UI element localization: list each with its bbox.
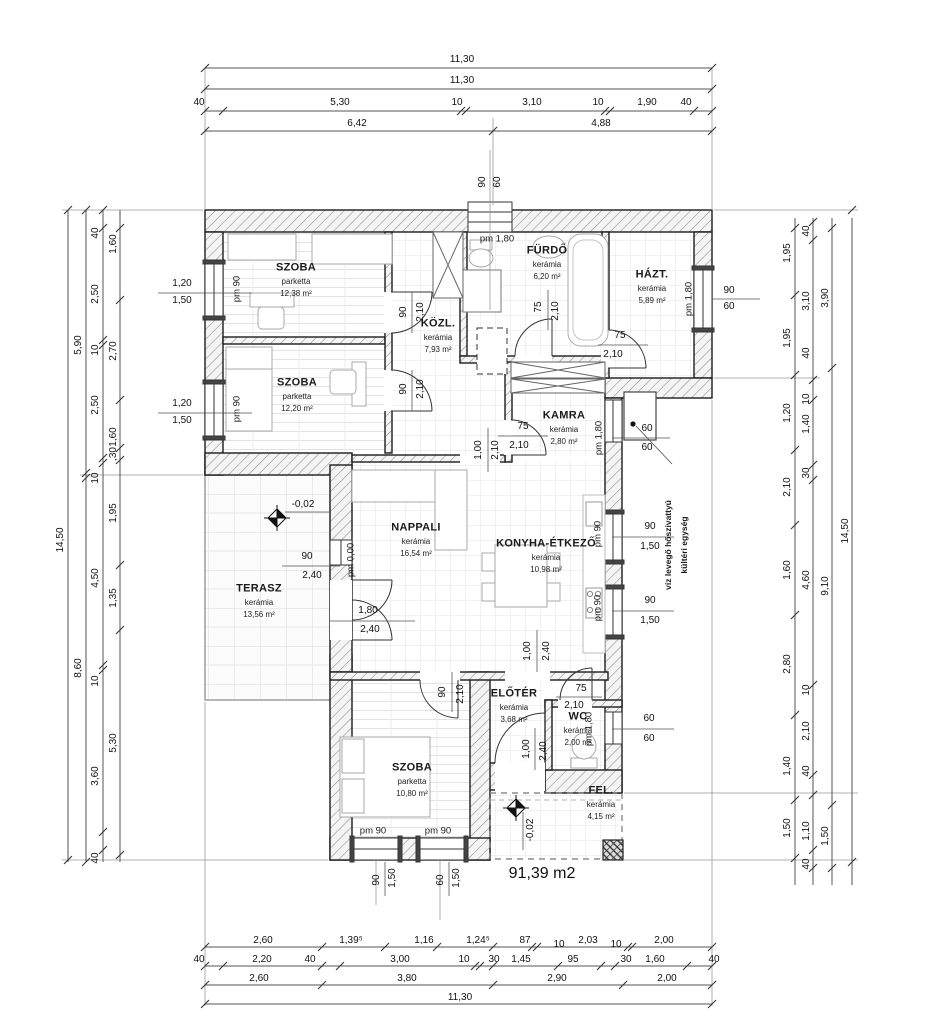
dimension-right: 1,20 (783, 403, 793, 422)
door-szoba1-label: 90 (399, 306, 409, 317)
window-left-1-label: 1,50 (172, 296, 191, 306)
dimension-bottom: 10 (610, 940, 621, 950)
door-wc-label: 2,10 (564, 701, 583, 711)
window-konyha-2-label: pm 90 (593, 595, 603, 621)
dimension-bottom: 2,60 (249, 974, 268, 984)
dimension-top: 40 (680, 98, 691, 108)
room-area: 16,54 m² (400, 550, 432, 558)
window-bottom-2 (416, 836, 468, 862)
dimension-top: 4,88 (591, 119, 610, 129)
window-left-1 (203, 260, 225, 320)
window-top-label: 60 (493, 176, 503, 187)
dimension-left: 2,70 (109, 341, 119, 360)
dimension-left: 10 (91, 344, 101, 355)
level-terasz-label: -0,02 (292, 500, 315, 510)
window-left-2 (203, 380, 225, 440)
dimension-right: 3,90 (821, 288, 831, 307)
dimension-bottom: 2,90 (547, 974, 566, 984)
room-name: FEL. (588, 786, 613, 797)
room-name: TERASZ (236, 584, 282, 595)
window-wc-label: 60 (643, 714, 654, 724)
dimension-left: 40 (91, 852, 101, 863)
window-bottom-1-label: pm 90 (360, 826, 386, 836)
window-hazt-label: pm 1,80 (684, 282, 694, 316)
room-finish: kerámia (638, 285, 666, 293)
door-szoba2-label: 90 (399, 383, 409, 394)
dimension-bottom: 11,30 (448, 993, 472, 1003)
dimension-right: 40 (802, 858, 812, 869)
door-terasz-label: 2,40 (360, 625, 379, 635)
room-area: 10,98 m² (530, 566, 562, 574)
room-name: ELŐTÉR (491, 689, 537, 700)
door-hazt-label: 75 (614, 331, 625, 341)
heat-pump-note-label: víz levegő hőszivattyú (664, 500, 673, 590)
dimension-right: 10 (802, 393, 812, 404)
door-szoba1-label: 2,10 (416, 302, 426, 321)
dimension-right: 40 (802, 765, 812, 776)
window-wc (605, 712, 622, 744)
room-name: SZOBA (276, 263, 316, 274)
dimension-right: 1,50 (783, 818, 793, 837)
dimension-bottom: 2,00 (657, 974, 676, 984)
window-top-label: 90 (478, 176, 488, 187)
dimension-right: 1,50 (821, 826, 831, 845)
dimension-left: 1,95 (109, 503, 119, 522)
dimension-right: 1,60 (783, 560, 793, 579)
dimension-left: 14,50 (56, 527, 66, 552)
dimension-right: 9,10 (821, 576, 831, 595)
dimension-right: 2,80 (783, 654, 793, 673)
dimension-bottom: 40 (708, 955, 719, 965)
dimension-left: 5,30 (109, 733, 119, 752)
window-hazt-label: 60 (723, 302, 734, 312)
dimension-right: 4,60 (802, 570, 812, 589)
dimension-left: 10 (91, 472, 101, 483)
room-area: 12,20 m² (281, 405, 313, 413)
door-kamra-label: 75 (517, 422, 528, 432)
dimension-right: 30 (802, 467, 812, 478)
opening-konyha-eloter-label: 2,40 (542, 641, 552, 660)
window-left-2-label: 1,20 (172, 399, 191, 409)
dimension-left: 5,90 (74, 335, 84, 354)
room-area: 12,38 m² (280, 290, 312, 298)
dimension-bottom: 10 (553, 940, 564, 950)
dimension-bottom: 40 (193, 955, 204, 965)
dimension-left: 8,60 (74, 658, 84, 677)
room-name: SZOBA (277, 378, 317, 389)
door-furdo-label: 75 (534, 301, 544, 312)
window-left-2-label: pm 90 (232, 396, 242, 422)
window-bottom-2-label: pm 90 (425, 826, 451, 836)
dimension-bottom: 3,80 (397, 974, 416, 984)
window-hazt (692, 266, 714, 332)
window-bottom-2-label: 1,50 (452, 868, 462, 887)
room-area: 3,68 m² (500, 716, 527, 724)
dimension-left: 3,60 (91, 766, 101, 785)
window-left-2-label: 1,50 (172, 416, 191, 426)
dimension-right: 1,95 (783, 328, 793, 347)
floor-plan-drawing (0, 0, 943, 1024)
dimension-top: 6,42 (347, 119, 366, 129)
window-kamra-label: pm 1,80 (594, 421, 604, 455)
door-terasz-label: 1,80 (358, 606, 377, 616)
door-szoba2-label: 2,10 (416, 379, 426, 398)
dimension-right: 2,10 (783, 477, 793, 496)
dimension-bottom: 2,00 (654, 936, 673, 946)
window-konyha-2-label: 90 (644, 596, 655, 606)
room-finish: kerámia (532, 554, 560, 562)
room-finish: kerámia (533, 261, 561, 269)
dimension-bottom: 1,45 (511, 955, 530, 965)
dimension-bottom: 2,03 (578, 936, 597, 946)
window-terasz-label: 90 (301, 552, 312, 562)
room-finish: parketta (398, 778, 427, 786)
dimension-right: 14,50 (841, 518, 851, 543)
dimension-left: 1,60 (109, 234, 119, 253)
door-szoba3-label: 90 (438, 686, 448, 697)
room-name: KAMRA (543, 411, 585, 422)
heat-pump-size-label: 60 (641, 443, 652, 453)
dimension-bottom: 40 (304, 955, 315, 965)
room-finish: kerámia (550, 426, 578, 434)
room-finish: kerámia (500, 704, 528, 712)
window-terasz-label: 2,40 (302, 571, 321, 581)
room-finish: kerámia (402, 538, 430, 546)
dimension-bottom: 1,60 (645, 955, 664, 965)
dimension-left: 40 (91, 227, 101, 238)
door-szoba3-label: 2,10 (456, 684, 466, 703)
room-finish: parketta (283, 393, 312, 401)
room-area: 10,80 m² (396, 790, 428, 798)
window-wc-label: pm 1,80 (584, 712, 594, 746)
dimension-bottom: 3,00 (390, 955, 409, 965)
window-bottom-2-label: 60 (436, 874, 446, 885)
opening-konyha-eloter-label: 1,00 (523, 641, 533, 660)
window-konyha-2 (603, 585, 624, 639)
room-finish: kerámia (245, 599, 273, 607)
room-area: 6,20 m² (533, 273, 560, 281)
dimension-right: 1,95 (783, 243, 793, 262)
room-area: 5,89 m² (638, 297, 665, 305)
dimension-bottom: 30 (488, 955, 499, 965)
opening-kozl-konyha-label: 1,00 (474, 440, 484, 459)
window-bottom-1-label: 90 (372, 874, 382, 885)
room-name: FÜRDŐ (527, 246, 568, 257)
window-wc-label: 60 (643, 734, 654, 744)
heat-pump-note-label: kültéri egység (680, 516, 689, 573)
room-name: SZOBA (392, 763, 432, 774)
door-wc-label: 75 (575, 684, 586, 694)
door-entrance-label: 1,00 (522, 739, 532, 758)
room-area: 4,15 m² (587, 813, 614, 821)
dimension-top: 11,30 (450, 55, 474, 65)
dimension-bottom: 1,24⁵ (466, 936, 490, 946)
dimension-right: 1,40 (802, 414, 812, 433)
room-name: KONYHA-ÉTKEZŐ (496, 539, 596, 550)
total-area-label: 91,39 m2 (509, 865, 576, 883)
opening-kozl-konyha-label: 2,10 (491, 440, 501, 459)
dimension-top: 10 (592, 98, 603, 108)
window-konyha-1-label: pm 90 (593, 521, 603, 547)
dimension-left: 2,50 (91, 395, 101, 414)
level-nappali-label: pm 0,00 (346, 543, 356, 577)
window-konyha-1-label: 1,50 (640, 542, 659, 552)
heat-pump-size-label: 60 (641, 424, 652, 434)
dimension-right: 40 (802, 225, 812, 236)
dimension-top: 5,30 (330, 98, 349, 108)
dimension-right: 10 (802, 684, 812, 695)
room-name: HÁZT. (636, 270, 669, 281)
window-bottom-1-label: 1,50 (388, 868, 398, 887)
room-finish: parketta (282, 278, 311, 286)
dimension-top: 11,30 (450, 76, 474, 86)
dimension-left: 1,60 (109, 427, 119, 446)
dimension-right: 2,10 (802, 721, 812, 740)
dimension-top: 1,90 (637, 98, 656, 108)
dimension-top: 40 (193, 98, 204, 108)
room-area: 13,56 m² (243, 611, 275, 619)
dimension-bottom: 87 (519, 936, 530, 946)
dimension-right: 1,40 (783, 756, 793, 775)
dimension-bottom: 2,20 (252, 955, 271, 965)
dimension-bottom: 2,60 (253, 936, 272, 946)
window-konyha-2-label: 1,50 (640, 616, 659, 626)
level-fel-label: -0,02 (526, 819, 536, 842)
dimension-right: 40 (802, 347, 812, 358)
floor-plan-page: SZOBAparketta12,38 m²SZOBAparketta12,20 … (0, 0, 943, 1024)
window-left-1-label: 1,20 (172, 279, 191, 289)
dimension-bottom: 95 (567, 955, 578, 965)
dimension-left: 10 (91, 675, 101, 686)
dimension-top: 10 (451, 98, 462, 108)
dimension-right: 3,10 (802, 291, 812, 310)
room-finish: kerámia (424, 334, 452, 342)
dimension-left: 2,50 (91, 284, 101, 303)
window-kamra (605, 400, 622, 442)
room-area: 7,93 m² (424, 346, 451, 354)
room-finish: kerámia (587, 801, 615, 809)
room-area: 2,80 m² (550, 438, 577, 446)
dimension-left: 4,50 (91, 568, 101, 587)
window-konyha-1-label: 90 (644, 522, 655, 532)
dimension-top: 3,10 (522, 98, 541, 108)
sill-furdo-label: pm 1,80 (480, 234, 514, 244)
door-kamra-label: 2,10 (509, 441, 528, 451)
window-bottom-1 (350, 836, 402, 862)
dimension-bottom: 1,39⁵ (339, 936, 363, 946)
dimension-bottom: 1,16 (414, 936, 433, 946)
door-entrance-label: 2,40 (539, 741, 549, 760)
dimension-left: ,30 (109, 447, 119, 461)
dimension-bottom: 30 (620, 955, 631, 965)
dimension-right: 1,10 (802, 821, 812, 840)
dimension-bottom: 10 (458, 955, 469, 965)
dimension-left: 1,35 (109, 588, 119, 607)
door-hazt-label: 2,10 (603, 350, 622, 360)
window-left-1-label: pm 90 (232, 276, 242, 302)
door-furdo-label: 2,10 (551, 301, 561, 320)
window-hazt-label: 90 (723, 286, 734, 296)
room-name: NAPPALI (391, 523, 441, 534)
